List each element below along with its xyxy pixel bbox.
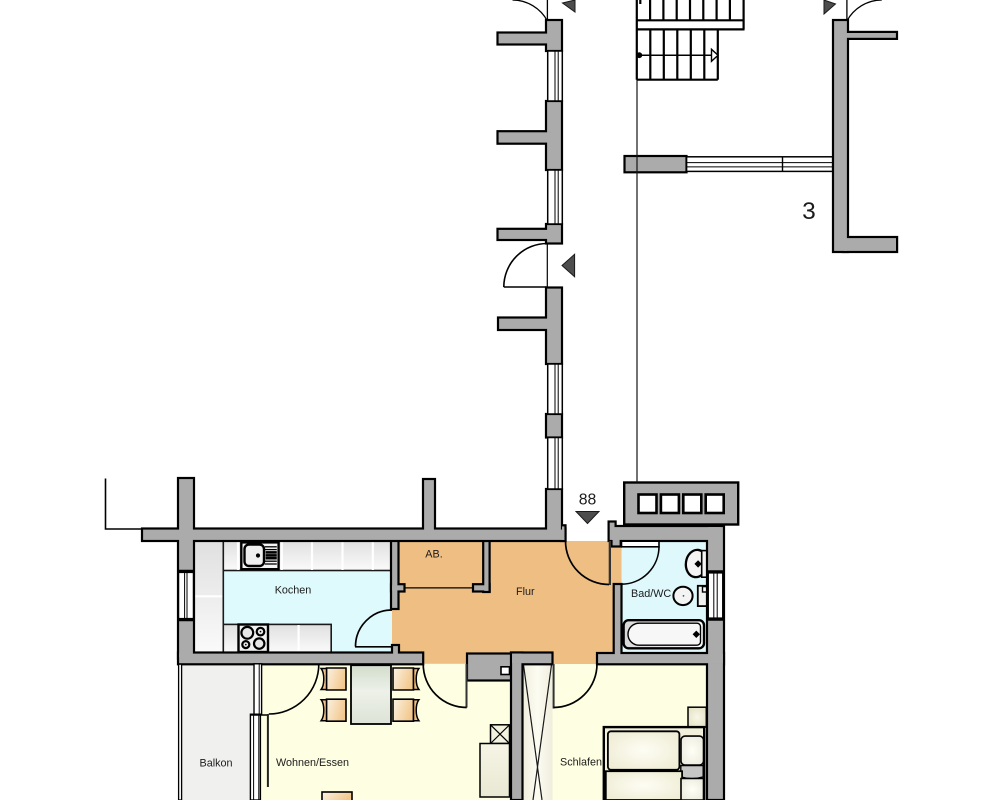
svg-text:Schlafen: Schlafen bbox=[560, 757, 602, 769]
svg-text:Wohnen/Essen: Wohnen/Essen bbox=[276, 757, 349, 769]
svg-text:Balkon: Balkon bbox=[200, 758, 233, 770]
svg-text:AB.: AB. bbox=[425, 549, 442, 561]
svg-text:3: 3 bbox=[802, 198, 816, 225]
svg-text:Kochen: Kochen bbox=[275, 585, 312, 597]
svg-text:Flur: Flur bbox=[516, 586, 535, 598]
svg-text:Bad/WC: Bad/WC bbox=[631, 588, 671, 600]
svg-text:88: 88 bbox=[579, 492, 597, 509]
